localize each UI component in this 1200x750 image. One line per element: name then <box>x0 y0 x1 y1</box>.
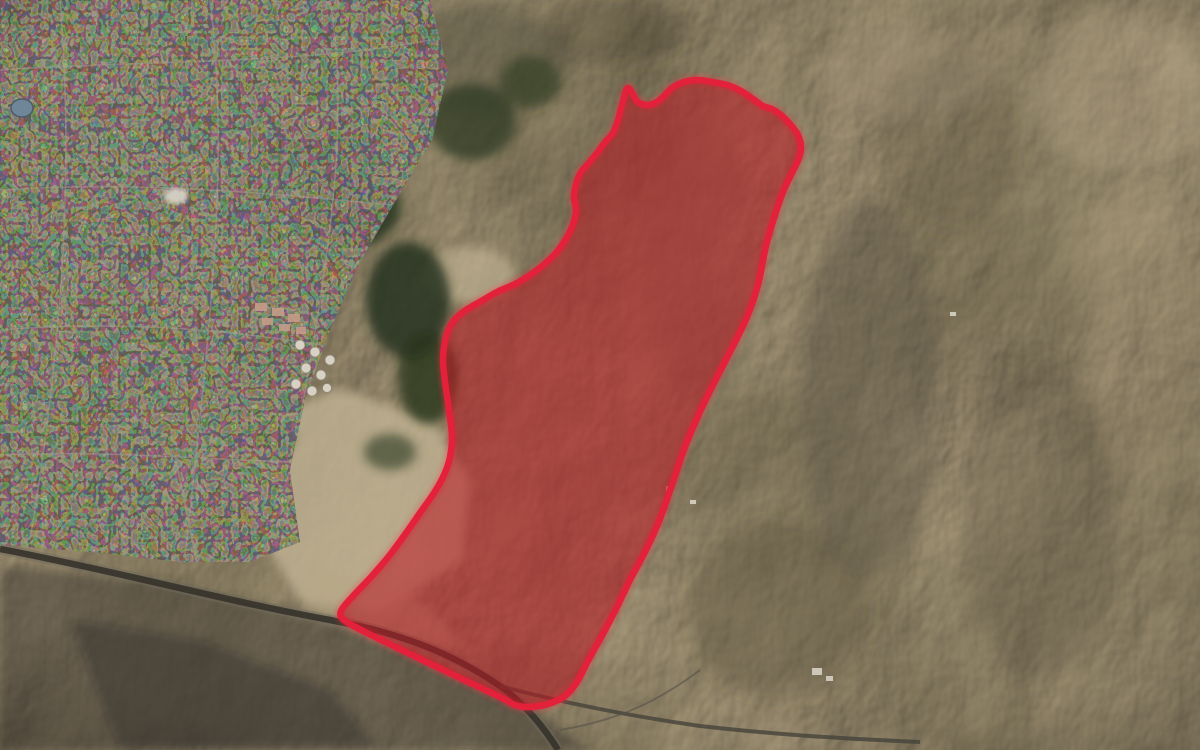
satellite-map[interactable] <box>0 0 1200 750</box>
vignette <box>0 0 1200 750</box>
map-image <box>0 0 1200 750</box>
